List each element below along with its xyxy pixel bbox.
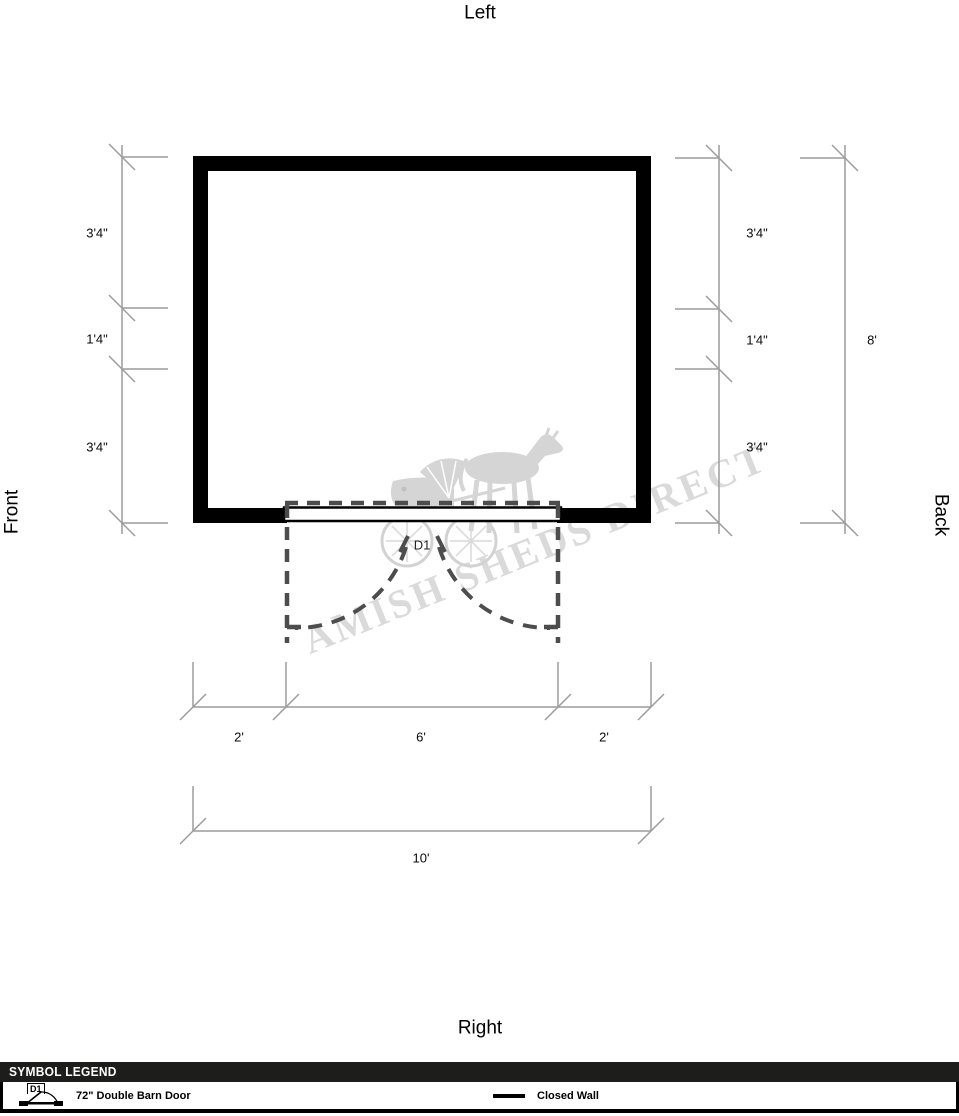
dim-left-3: 3'4" [86,441,108,454]
dim-right-3: 3'4" [746,441,768,454]
orientation-label-bottom: Right [458,1019,502,1038]
legend-header: SYMBOL LEGEND [0,1062,959,1082]
door-swing-glyph [18,1091,64,1107]
dim-left-1: 3'4" [86,227,108,240]
orientation-label-left: Front [3,490,22,534]
legend-item-wall: Closed Wall [493,1082,599,1109]
legend-item-door: D1 72" Double Barn Door [18,1083,191,1107]
dim-right-overall: 8' [867,334,877,347]
legend-title: SYMBOL LEGEND [9,1062,117,1082]
symbol-legend: SYMBOL LEGEND D1 72" Double Barn Door Cl… [0,1062,959,1113]
legend-door-label: 72" Double Barn Door [76,1090,191,1102]
dim-left-2: 1'4" [86,333,108,346]
dim-bottom-1: 2' [234,731,244,744]
dim-bottom-3: 2' [599,731,609,744]
closed-walls [193,156,651,523]
floor-plan-drawing [0,0,959,1060]
dim-bottom-2: 6' [416,731,426,744]
door-swing-icon: D1 [18,1083,64,1107]
legend-wall-label: Closed Wall [537,1090,599,1102]
orientation-label-right: Back [932,494,951,536]
door-d1 [284,503,561,643]
dim-bottom-overall: 10' [413,852,430,865]
dim-right-1: 3'4" [746,227,768,240]
closed-wall-swatch-icon [493,1094,525,1098]
door-label: D1 [414,539,431,552]
watermark-horse-buggy-icon [382,428,563,566]
legend-body: D1 72" Double Barn Door Closed Wall [0,1082,959,1113]
dim-right-2: 1'4" [746,334,768,347]
orientation-label-top: Left [464,4,496,23]
